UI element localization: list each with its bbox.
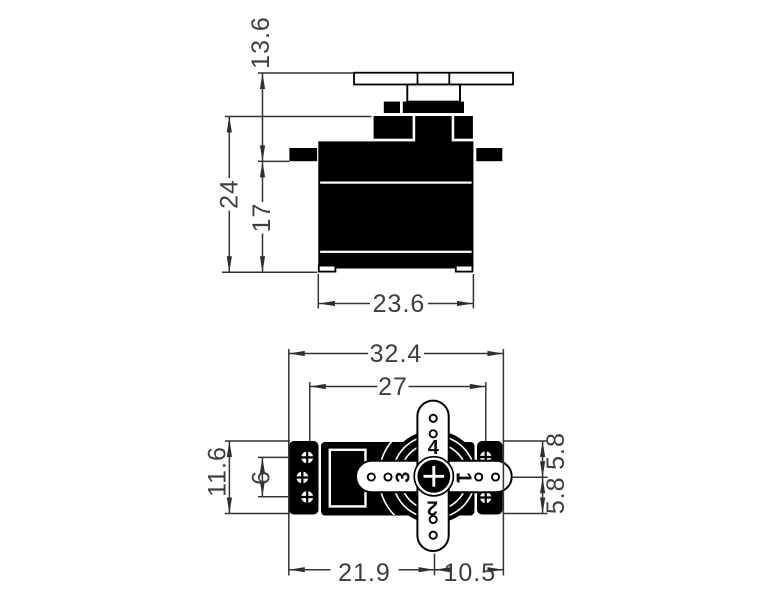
svg-text:24: 24 bbox=[216, 179, 244, 209]
svg-text:21.9: 21.9 bbox=[338, 559, 391, 587]
svg-text:23.6: 23.6 bbox=[373, 290, 426, 318]
svg-text:11.6: 11.6 bbox=[203, 446, 231, 497]
svg-text:10.5: 10.5 bbox=[443, 559, 496, 587]
svg-text:13.6: 13.6 bbox=[247, 16, 275, 69]
svg-text:1: 1 bbox=[453, 472, 475, 483]
svg-text:17: 17 bbox=[248, 203, 276, 233]
svg-text:3: 3 bbox=[393, 472, 415, 483]
svg-text:2: 2 bbox=[427, 496, 438, 518]
svg-text:27: 27 bbox=[378, 373, 408, 401]
svg-text:6: 6 bbox=[247, 470, 275, 485]
svg-text:32.4: 32.4 bbox=[370, 340, 423, 368]
svg-text:4: 4 bbox=[428, 437, 440, 459]
svg-text:5.8: 5.8 bbox=[542, 432, 570, 470]
svg-text:5.8: 5.8 bbox=[542, 476, 570, 514]
